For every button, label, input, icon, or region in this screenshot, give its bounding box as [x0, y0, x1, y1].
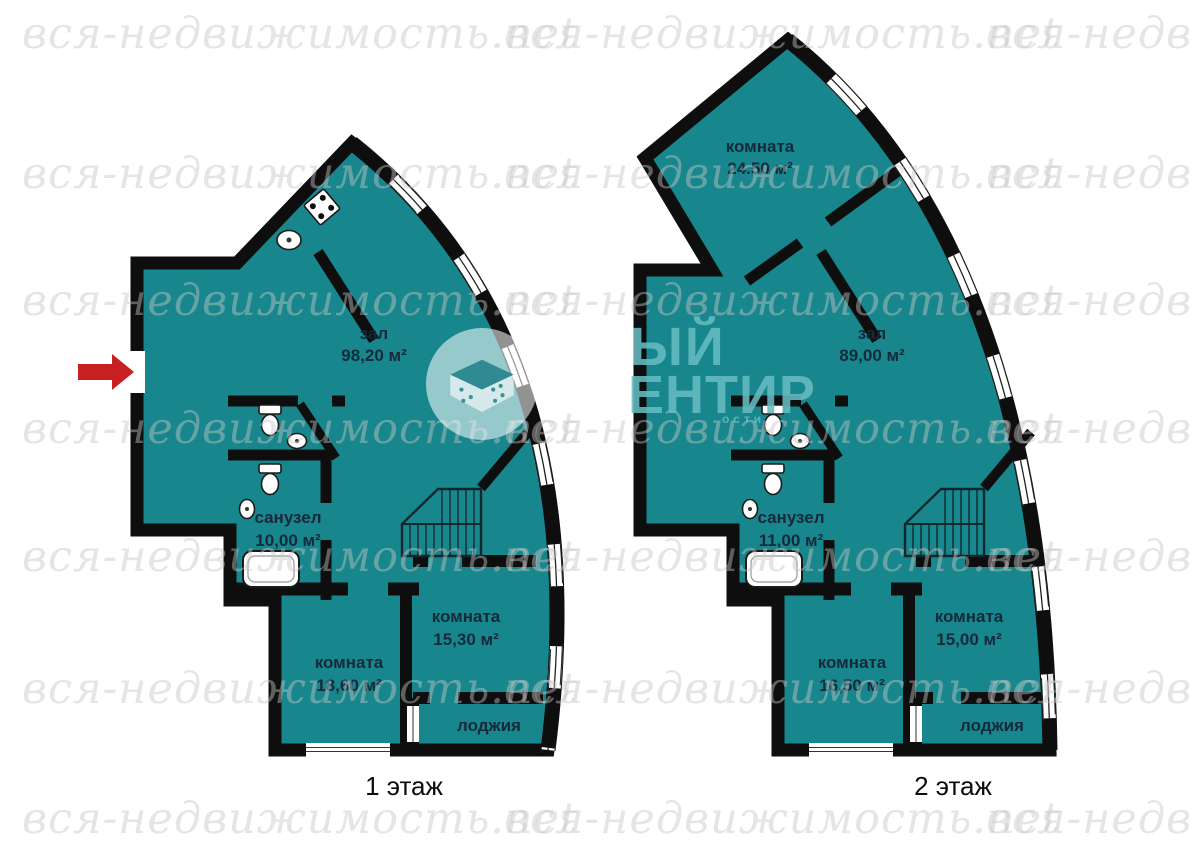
floor2-caption: 2 этаж	[914, 771, 992, 801]
room-area-bedroom1: 16,50 м²	[819, 676, 885, 695]
room-area-bath: 11,00 м²	[759, 531, 824, 550]
room-area-bedroom2: 15,30 м²	[433, 630, 499, 649]
room-area-hall: 89,00 м²	[839, 346, 905, 365]
floorplan-page: зал 98,20 м² санузел 10,00 м² комната 18…	[0, 0, 1195, 847]
room-label-bedroom1: комната	[315, 653, 384, 672]
bathtub-icon	[243, 551, 299, 587]
floorplans-canvas: зал 98,20 м² санузел 10,00 м² комната 18…	[0, 0, 1195, 847]
toilet-icon	[259, 464, 281, 495]
kitchen-sink-icon	[277, 231, 301, 250]
room-label-bedroom1: комната	[818, 653, 887, 672]
toilet-icon	[762, 464, 784, 495]
sink-icon	[240, 500, 255, 519]
room-label-hall: зал	[858, 324, 886, 343]
sink-icon	[288, 434, 307, 449]
room-area-bedroom1: 18,60 м²	[316, 676, 382, 695]
room-label-bath: санузел	[254, 508, 321, 527]
room-area-hall: 98,20 м²	[341, 346, 407, 365]
room-label-bedroom2: комната	[432, 607, 501, 626]
plan-floor-2: комната 24.50 м² зал 89,00 м² санузел 11…	[640, 36, 1056, 801]
toilet-icon	[259, 405, 281, 436]
room-label-hall: зал	[360, 324, 388, 343]
room-area-top: 24.50 м²	[727, 159, 793, 178]
room-area-bedroom2: 15,00 м²	[936, 630, 1002, 649]
room-label-bedroom2: комната	[935, 607, 1004, 626]
entrance-arrow-icon	[78, 354, 134, 390]
room-area-bath: 10,00 м²	[255, 531, 321, 550]
room-label-loggia: лоджия	[457, 716, 521, 735]
bathtub-icon	[746, 551, 802, 587]
room-label-bath: санузел	[757, 508, 824, 527]
toilet-icon	[762, 405, 784, 436]
sink-icon	[791, 434, 810, 449]
room-label-top: комната	[726, 137, 795, 156]
plan-floor-1: зал 98,20 м² санузел 10,00 м² комната 18…	[78, 140, 563, 801]
floor1-caption: 1 этаж	[365, 771, 443, 801]
sink-icon	[743, 500, 758, 519]
room-label-loggia: лоджия	[960, 716, 1024, 735]
